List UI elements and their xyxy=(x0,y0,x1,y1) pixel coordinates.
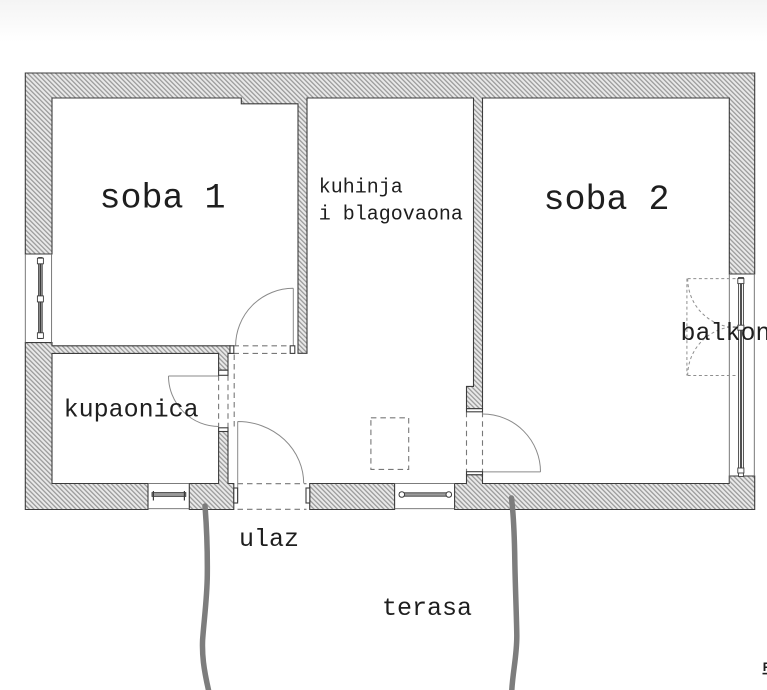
svg-text:kupaonica: kupaonica xyxy=(64,395,199,424)
svg-text:kuhinja: kuhinja xyxy=(319,177,403,200)
svg-text:i blagovaona: i blagovaona xyxy=(319,203,463,226)
svg-text:balkon: balkon xyxy=(681,319,767,348)
svg-text:ulaz: ulaz xyxy=(239,525,299,554)
svg-text:soba 2: soba 2 xyxy=(544,180,670,220)
svg-text:soba 1: soba 1 xyxy=(100,179,226,219)
svg-text:F: F xyxy=(763,660,767,675)
svg-text:terasa: terasa xyxy=(382,594,472,623)
